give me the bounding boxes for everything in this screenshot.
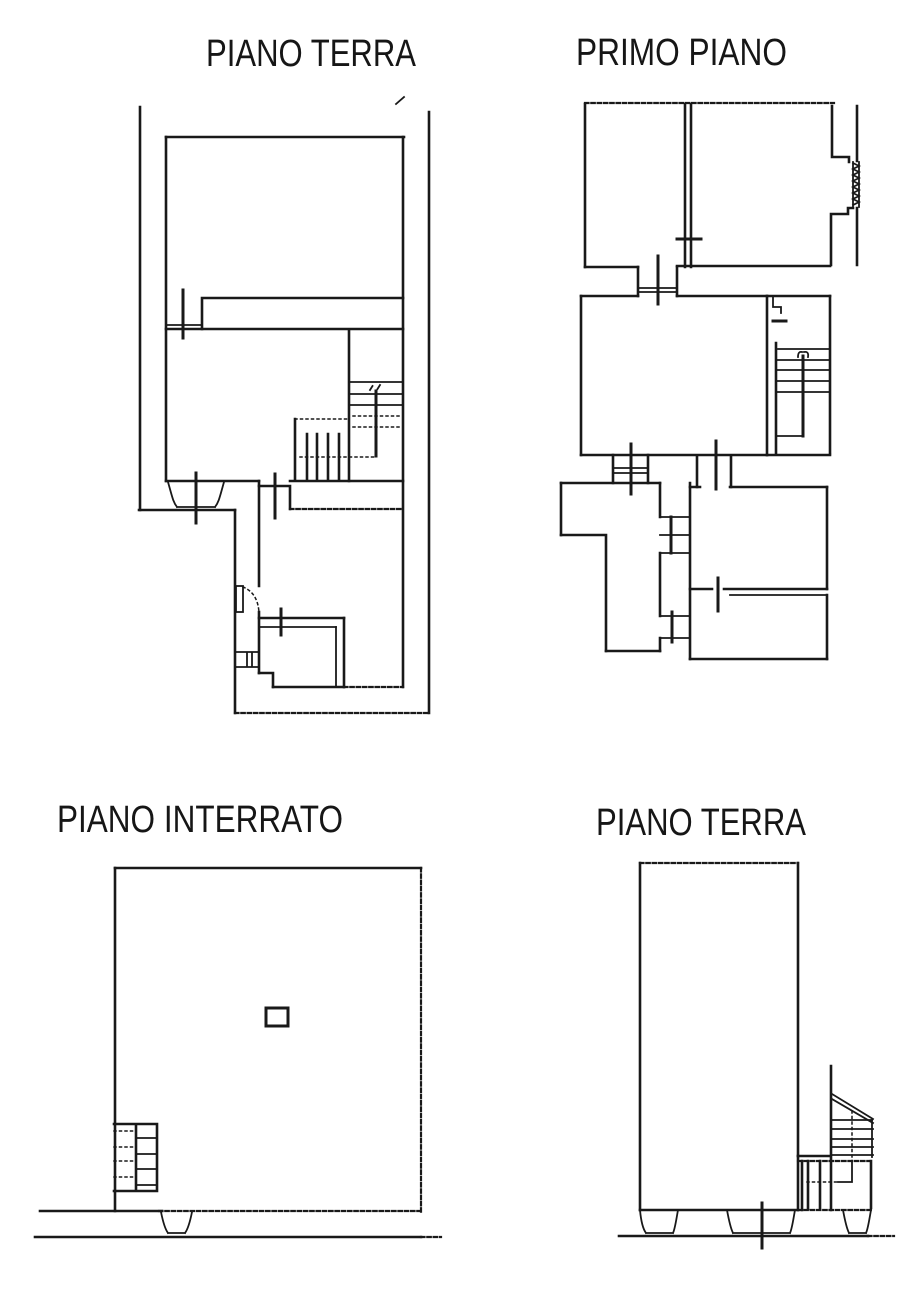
svg-text:PRIMO PIANO: PRIMO PIANO xyxy=(576,32,787,74)
svg-text:PIANO TERRA: PIANO TERRA xyxy=(206,33,417,75)
svg-text:PIANO INTERRATO: PIANO INTERRATO xyxy=(57,799,343,841)
svg-text:PIANO TERRA: PIANO TERRA xyxy=(596,802,807,844)
